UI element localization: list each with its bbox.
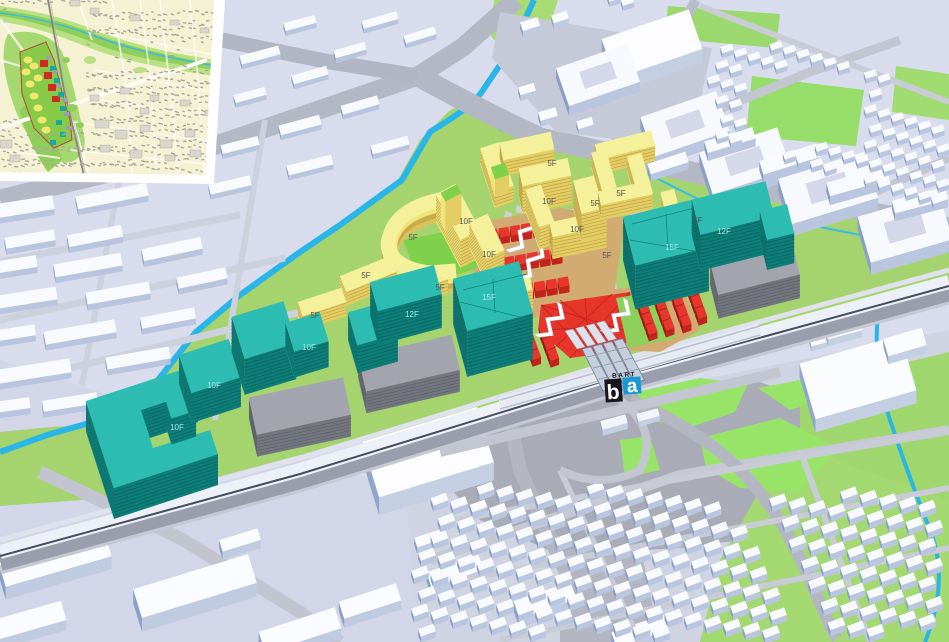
svg-text:10F: 10F [207, 381, 221, 390]
svg-text:15F: 15F [665, 243, 679, 252]
svg-text:10F: 10F [570, 225, 584, 234]
svg-text:10F: 10F [542, 197, 556, 206]
svg-text:5F: 5F [590, 199, 599, 208]
svg-text:5F: 5F [602, 251, 611, 260]
svg-text:5F: 5F [547, 159, 556, 168]
svg-text:a: a [626, 376, 638, 398]
svg-text:10F: 10F [482, 250, 496, 259]
svg-text:10F: 10F [459, 217, 473, 226]
svg-text:12F: 12F [405, 310, 419, 319]
svg-text:5F: 5F [361, 271, 370, 280]
svg-text:15F: 15F [482, 293, 496, 302]
svg-text:5F: 5F [408, 233, 417, 242]
svg-text:5F: 5F [310, 311, 319, 320]
svg-text:b: b [606, 381, 620, 405]
svg-text:5F: 5F [435, 283, 444, 292]
svg-text:12F: 12F [717, 227, 731, 236]
svg-text:10F: 10F [170, 423, 184, 432]
svg-text:5F: 5F [616, 189, 625, 198]
svg-text:10F: 10F [302, 343, 316, 352]
svg-text:5F: 5F [693, 216, 702, 225]
